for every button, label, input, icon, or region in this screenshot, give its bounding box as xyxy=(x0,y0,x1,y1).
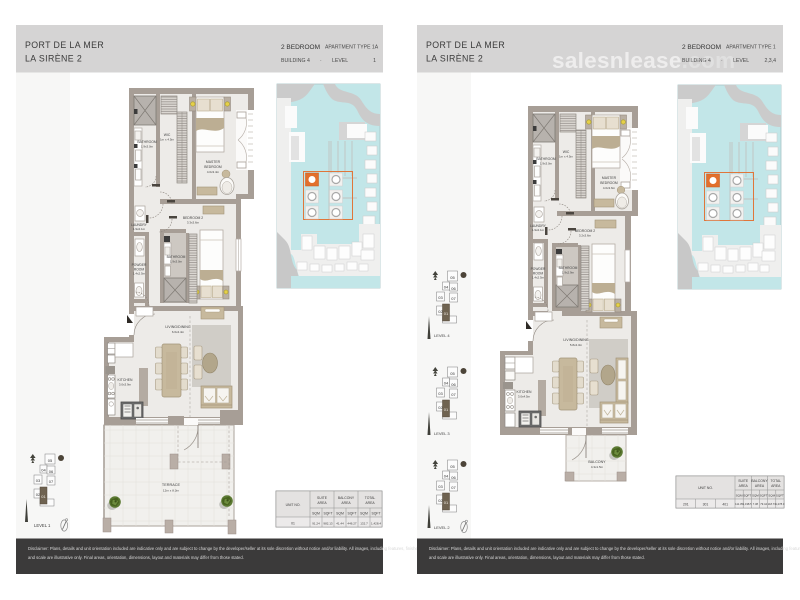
svg-text:1: 1 xyxy=(373,58,376,64)
svg-text:UNIT NO.: UNIT NO. xyxy=(286,503,301,507)
svg-text:SQM: SQM xyxy=(360,512,368,516)
svg-text:POWDER: POWDER xyxy=(132,263,147,267)
svg-text:BATHROOM: BATHROOM xyxy=(559,266,578,270)
svg-text:SQM: SQM xyxy=(336,512,344,516)
svg-text:1,278.0: 1,278.0 xyxy=(775,502,784,506)
svg-text:AREA: AREA xyxy=(771,484,781,488)
svg-text:41.44: 41.44 xyxy=(336,522,344,526)
svg-text:BUILDING 4: BUILDING 4 xyxy=(281,58,310,64)
svg-text:BATHROOM: BATHROOM xyxy=(137,140,157,144)
svg-text:LEVEL 3: LEVEL 3 xyxy=(434,431,450,436)
svg-text:KITCHEN: KITCHEN xyxy=(118,378,133,382)
svg-text:WIC: WIC xyxy=(563,150,570,154)
svg-text:LIVING/DINING: LIVING/DINING xyxy=(563,338,589,342)
svg-text:PORT DE LA MER: PORT DE LA MER xyxy=(426,40,505,50)
svg-text:salesnlease.com: salesnlease.com xyxy=(552,48,735,73)
svg-text:132.7: 132.7 xyxy=(360,522,368,526)
svg-text:BALCONY: BALCONY xyxy=(751,479,768,483)
svg-text:SQFT: SQFT xyxy=(743,494,751,498)
svg-text:LEVEL: LEVEL xyxy=(332,58,348,64)
svg-text:79.44: 79.44 xyxy=(760,502,767,506)
svg-text:1.9x2.1m: 1.9x2.1m xyxy=(532,228,545,232)
svg-text:and scale are illustrative onl: and scale are illustrative only. Final a… xyxy=(28,555,244,560)
svg-text:PORT DE LA MER: PORT DE LA MER xyxy=(25,40,104,50)
svg-text:SUITE: SUITE xyxy=(317,496,328,500)
svg-text:AREA: AREA xyxy=(365,501,375,505)
svg-text:AREA: AREA xyxy=(739,484,749,488)
svg-text:1.4x2.5m: 1.4x2.5m xyxy=(532,276,545,280)
svg-text:4.3x1.5m: 4.3x1.5m xyxy=(591,465,604,469)
svg-text:1.4x2.5m: 1.4x2.5m xyxy=(133,272,146,276)
svg-text:1m x 4.5m: 1m x 4.5m xyxy=(160,138,175,142)
svg-text:UNIT NO.: UNIT NO. xyxy=(698,486,713,490)
svg-text:TERRACE: TERRACE xyxy=(162,483,181,487)
svg-text:1.9x2.9m: 1.9x2.9m xyxy=(562,271,575,275)
svg-text:5.8x4.3m: 5.8x4.3m xyxy=(570,343,583,347)
svg-text:LA SIRÈNE 2: LA SIRÈNE 2 xyxy=(25,54,82,64)
svg-text:SQM: SQM xyxy=(752,494,759,498)
svg-text:982.13: 982.13 xyxy=(323,522,333,526)
svg-text:6.6x4.4m: 6.6x4.4m xyxy=(172,330,185,334)
svg-text:BALCONY: BALCONY xyxy=(588,460,606,464)
svg-text:4.0x3.6m: 4.0x3.6m xyxy=(603,186,616,190)
svg-text:BEDROOM: BEDROOM xyxy=(204,165,222,169)
svg-text:TOTAL: TOTAL xyxy=(365,496,376,500)
svg-text:SQM: SQM xyxy=(312,512,320,516)
svg-text:KITCHEN: KITCHEN xyxy=(517,390,532,394)
svg-text:Disclaimer: Plans, details and: Disclaimer: Plans, details and unit orie… xyxy=(28,546,454,551)
svg-text:1,428.4: 1,428.4 xyxy=(371,522,381,526)
svg-text:1.9x3.0m: 1.9x3.0m xyxy=(170,260,183,264)
svg-text:Disclaimer: Plans, details and: Disclaimer: Plans, details and unit orie… xyxy=(429,546,800,551)
svg-text:3.0x3.9m: 3.0x3.9m xyxy=(119,383,132,387)
svg-text:446.27: 446.27 xyxy=(347,522,357,526)
svg-text:3.3x3.6m: 3.3x3.6m xyxy=(187,221,200,225)
svg-text:SQFT: SQFT xyxy=(347,512,356,516)
svg-text:SQFT: SQFT xyxy=(323,512,332,516)
svg-text:SQFT: SQFT xyxy=(776,494,784,498)
svg-text:401: 401 xyxy=(722,503,728,507)
svg-text:2,3,4: 2,3,4 xyxy=(764,58,776,64)
svg-text:AREA: AREA xyxy=(341,501,351,505)
svg-text:LIVING/DINING: LIVING/DINING xyxy=(165,325,191,329)
svg-text:LEVEL 2: LEVEL 2 xyxy=(434,525,450,530)
svg-text:3.0x4.5m: 3.0x4.5m xyxy=(518,395,531,399)
svg-text:LEVEL 4: LEVEL 4 xyxy=(434,333,450,338)
svg-text:SUITE: SUITE xyxy=(738,479,749,483)
svg-text:POWDER: POWDER xyxy=(531,267,546,271)
svg-text:SQFT: SQFT xyxy=(371,512,380,516)
svg-text:3.2x3.6m: 3.2x3.6m xyxy=(579,234,592,238)
svg-text:LA SIRÈNE 2: LA SIRÈNE 2 xyxy=(426,54,483,64)
svg-text:201: 201 xyxy=(683,503,689,507)
svg-text:TOTAL: TOTAL xyxy=(770,479,781,483)
svg-text:and scale are illustrative onl: and scale are illustrative only. Final a… xyxy=(429,555,645,560)
svg-text:BATHROOM: BATHROOM xyxy=(536,157,556,161)
svg-text:01: 01 xyxy=(291,522,295,526)
svg-text:91.24: 91.24 xyxy=(312,522,320,526)
svg-text:12m x 8.3m: 12m x 8.3m xyxy=(163,489,180,493)
svg-text:1.9x2.1m: 1.9x2.1m xyxy=(133,227,146,231)
svg-text:301: 301 xyxy=(703,503,709,507)
svg-text:AREA: AREA xyxy=(755,484,765,488)
svg-text:SQFT: SQFT xyxy=(760,494,768,498)
svg-text:BEDROOM: BEDROOM xyxy=(600,181,618,185)
svg-text:1.9x3.0m: 1.9x3.0m xyxy=(141,145,154,149)
svg-text:LEVEL: LEVEL xyxy=(733,58,749,64)
svg-text:WIC: WIC xyxy=(164,133,171,137)
svg-text:SQM: SQM xyxy=(768,494,775,498)
svg-text:7.38: 7.38 xyxy=(753,502,759,506)
svg-text:BEDROOM 2: BEDROOM 2 xyxy=(575,229,595,233)
svg-text:BALCONY: BALCONY xyxy=(338,496,355,500)
svg-text:MASTER: MASTER xyxy=(602,176,617,180)
svg-text:4.0x3.4m: 4.0x3.4m xyxy=(207,170,220,174)
svg-text:1,198.5: 1,198.5 xyxy=(743,502,752,506)
svg-text:1m x 4.5m: 1m x 4.5m xyxy=(559,155,574,159)
svg-text:LEVEL 1: LEVEL 1 xyxy=(34,523,51,528)
svg-text:MASTER: MASTER xyxy=(206,160,221,164)
svg-text:2 BEDROOM: 2 BEDROOM xyxy=(281,44,320,51)
svg-text:BATHROOM: BATHROOM xyxy=(167,255,186,259)
svg-text:1.9x3.0m: 1.9x3.0m xyxy=(540,162,553,166)
svg-text:APARTMENT TYPE 1A: APARTMENT TYPE 1A xyxy=(325,45,379,51)
svg-text:SQM: SQM xyxy=(736,494,743,498)
svg-text:·: · xyxy=(320,58,322,64)
svg-text:AREA: AREA xyxy=(317,501,327,505)
svg-text:BEDROOM 2: BEDROOM 2 xyxy=(183,216,203,220)
